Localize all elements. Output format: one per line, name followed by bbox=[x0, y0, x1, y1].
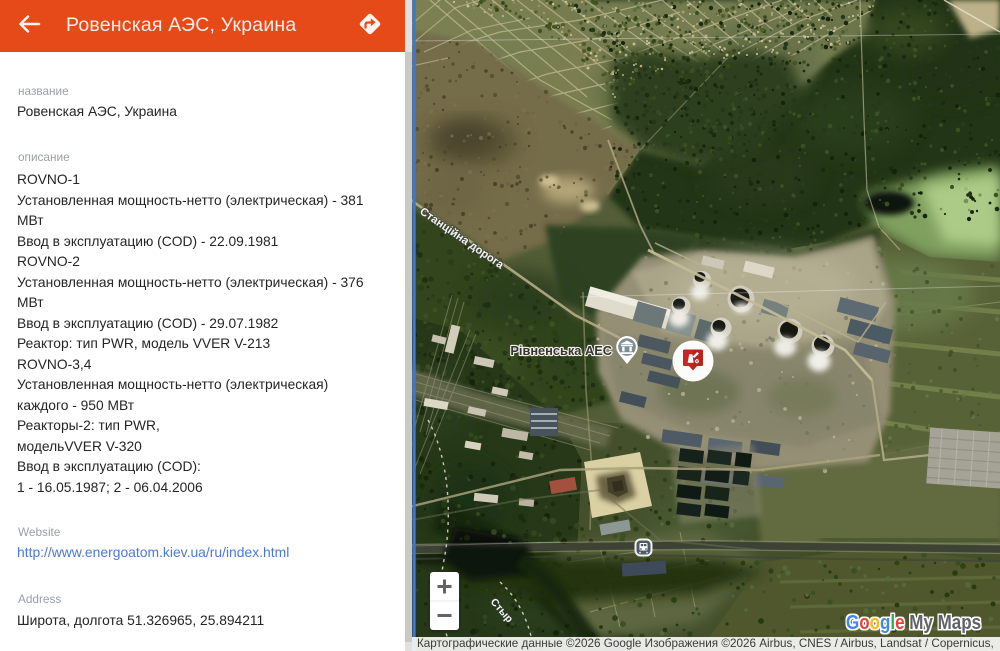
svg-text:Рівненська АЕС: Рівненська АЕС bbox=[510, 343, 612, 358]
